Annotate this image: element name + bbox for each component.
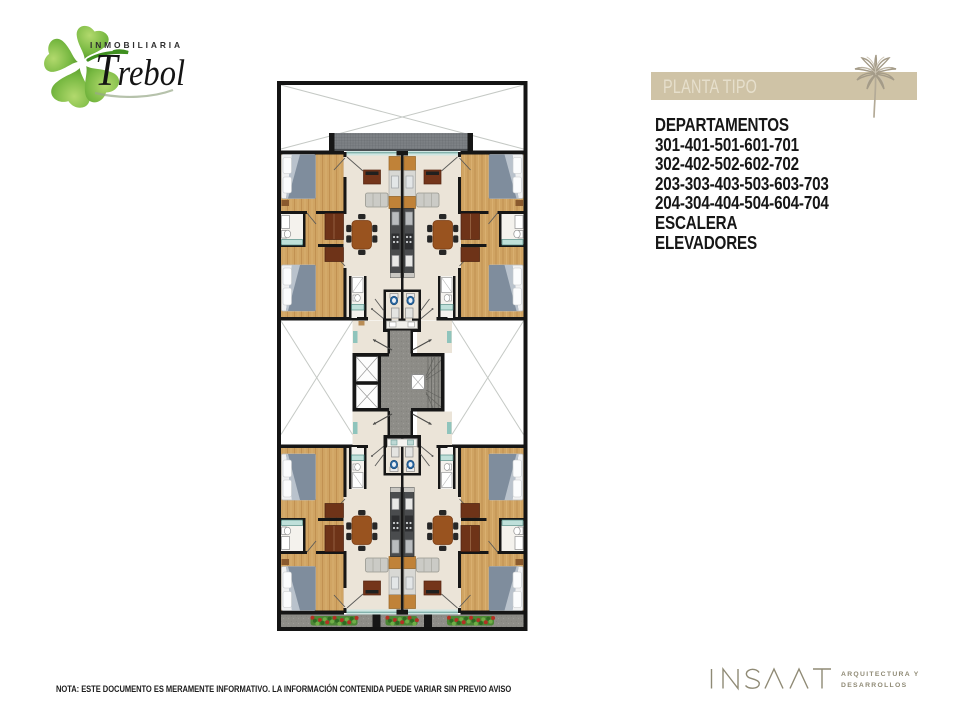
svg-text:ARQUITECTURA Y: ARQUITECTURA Y <box>841 671 920 678</box>
svg-text:Trebol: Trebol <box>95 45 185 96</box>
svg-text:DESARROLLOS: DESARROLLOS <box>841 682 907 689</box>
